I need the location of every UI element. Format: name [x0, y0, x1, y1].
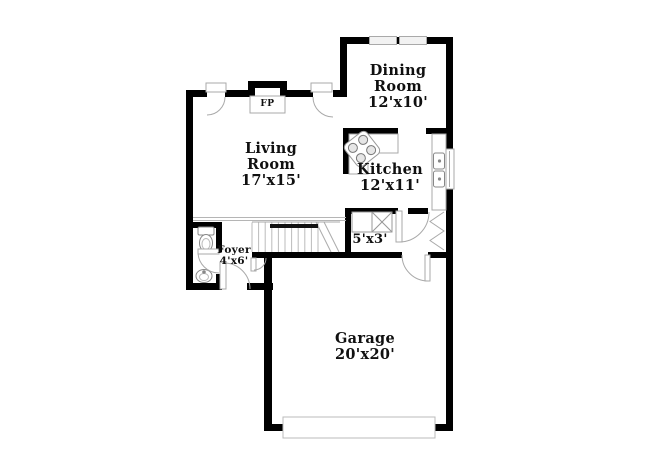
pedestal-sink-icon [196, 270, 212, 283]
dining-room-dims: 12'x10' [352, 95, 444, 111]
garage-dims: 20'x20' [312, 347, 418, 363]
stairs-icon [252, 222, 340, 252]
living-room-name: Living Room [236, 141, 306, 173]
floor-plan: Dining Room 12'x10' Living Room 17'x15' … [0, 0, 650, 473]
pantry-shelves-icon [352, 212, 392, 232]
dining-room-name: Dining Room [363, 63, 433, 95]
room-boundary-lines [193, 218, 346, 221]
dining-room-label: Dining Room 12'x10' [352, 63, 444, 112]
kitchen-name: Kitchen [355, 162, 425, 178]
kitchen-dims: 12'x11' [348, 178, 432, 194]
foyer-label: Foyer 4'x6' [210, 245, 258, 267]
garage-label: Garage 20'x20' [312, 331, 418, 363]
garage-door-icon [283, 417, 435, 438]
kitchen-label: Kitchen 12'x11' [348, 162, 432, 194]
floor-plan-drawing [0, 0, 650, 473]
garage-name: Garage [330, 331, 400, 347]
bifold-closet-doors-icon [430, 212, 444, 250]
living-room-dims: 17'x15' [221, 173, 321, 189]
pantry-label: 5'x3' [344, 233, 396, 248]
living-room-label: Living Room 17'x15' [221, 141, 321, 190]
pantry-dims: 5'x3' [344, 233, 396, 248]
fireplace-label: FP [250, 96, 285, 113]
foyer-dims: 4'x6' [210, 256, 258, 267]
handrail-icon [270, 224, 318, 228]
